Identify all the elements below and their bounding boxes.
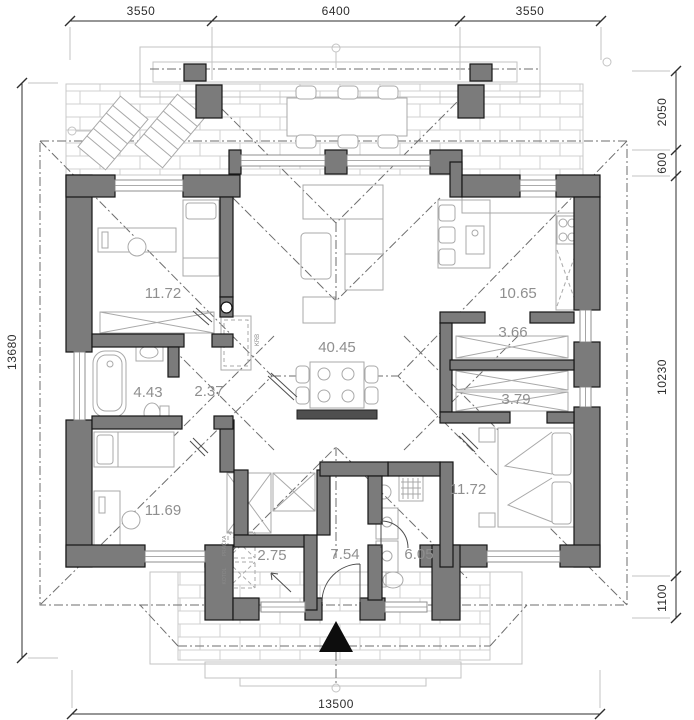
- room-area-closet-1: 3.66: [498, 324, 527, 341]
- wardrobe: [100, 312, 214, 333]
- room-area-labels: 11.72 10.65 3.66 40.45 4.43 2.37 3.79 11…: [133, 285, 536, 564]
- bed-single: [183, 200, 219, 276]
- hallway-door: [268, 373, 297, 400]
- room-area-bedroom-3: 11.69: [145, 502, 181, 519]
- window: [145, 551, 205, 562]
- dim-bottom: 13500: [318, 697, 354, 711]
- room-area-closet-2: 3.79: [501, 391, 530, 408]
- room-area-bathroom-1: 4.43: [133, 384, 162, 401]
- chimney-flue: [221, 302, 232, 313]
- dim-top-2: 6400: [322, 4, 351, 18]
- room-area-bedroom-1: 11.72: [145, 285, 181, 302]
- bed-double: [479, 428, 575, 527]
- kitchen-island: [438, 200, 490, 268]
- window: [261, 602, 305, 612]
- dim-right-4: 1100: [655, 584, 669, 612]
- room-area-bathroom-2: 6.05: [404, 546, 433, 563]
- desk: [98, 228, 176, 256]
- window: [241, 155, 325, 166]
- sideboard: [297, 410, 377, 419]
- bedroom2-door: [459, 433, 478, 452]
- terrace-table: [287, 86, 407, 148]
- boiler-label: KOTOL: [222, 567, 228, 584]
- floor-plan-drawing: 3550 6400 3550 13680 2050 600 10230 1100…: [0, 0, 694, 720]
- window: [520, 180, 556, 191]
- fireplace-label: KRB: [255, 334, 261, 346]
- window: [580, 310, 591, 342]
- room-area-kitchen: 10.65: [499, 285, 537, 302]
- bed-single: [94, 432, 174, 467]
- dining-table: [296, 362, 378, 408]
- dim-right-1: 2050: [655, 98, 669, 127]
- dim-right-3: 10230: [655, 359, 669, 395]
- room-area-living-room: 40.45: [318, 339, 356, 356]
- window: [74, 352, 85, 420]
- window: [385, 602, 427, 612]
- bedroom1-door: [193, 308, 212, 325]
- desk: [94, 491, 140, 552]
- window: [347, 155, 430, 166]
- window: [580, 387, 591, 407]
- room-area-utility: 2.75: [257, 547, 286, 564]
- window: [487, 551, 560, 562]
- dim-top-3: 3550: [516, 4, 545, 18]
- washer-label: PRÁČKA: [221, 535, 228, 556]
- dim-left: 13680: [5, 334, 19, 370]
- bathtub: [93, 351, 126, 417]
- floor-plan-page: 3550 6400 3550 13680 2050 600 10230 1100…: [0, 0, 694, 720]
- room-area-bedroom-2: 11.72: [450, 481, 486, 498]
- bedroom3-door: [190, 438, 208, 456]
- sofa: [301, 185, 383, 323]
- window: [115, 180, 183, 191]
- room-area-hallway: 2.37: [194, 383, 223, 400]
- bathroom2-door: [381, 521, 408, 548]
- dim-right-2: 600: [655, 152, 669, 174]
- room-area-entry-hall: 7.54: [330, 546, 359, 563]
- dim-top-1: 3550: [127, 4, 156, 18]
